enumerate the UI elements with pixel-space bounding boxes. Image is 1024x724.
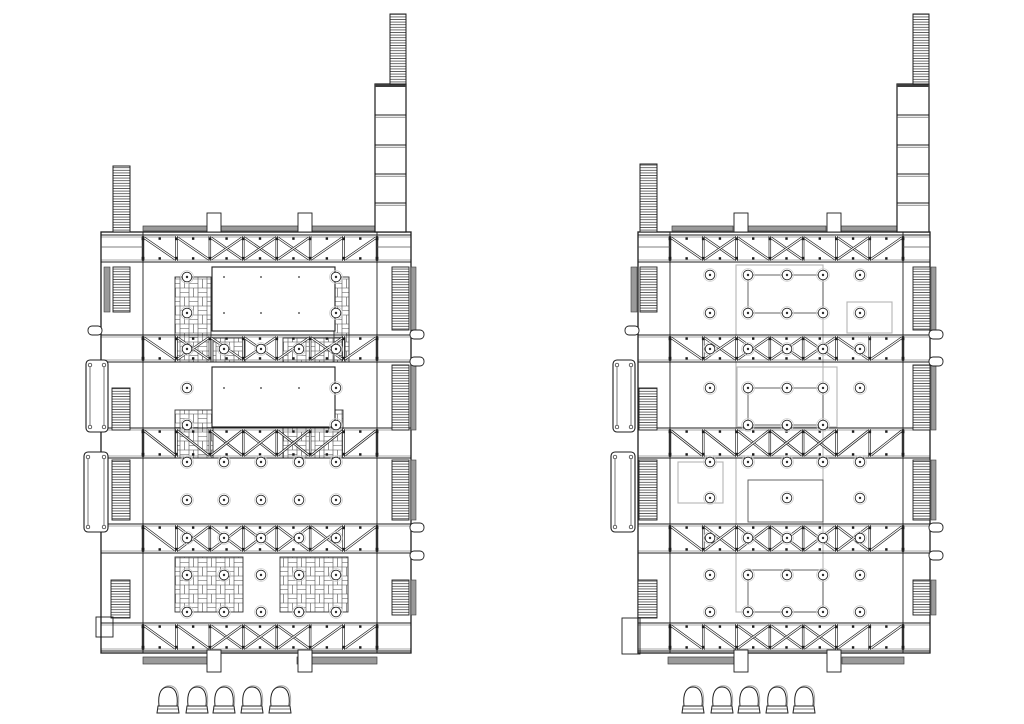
- service-towers: [113, 14, 406, 232]
- external-lifts: [611, 360, 635, 532]
- corner-annex: [622, 618, 640, 654]
- bollard-row-left: [157, 686, 291, 713]
- roof-edge-top: [672, 213, 901, 232]
- plans-root: [84, 14, 943, 713]
- drawing-canvas: [0, 0, 1024, 724]
- roof-edge-top: [143, 213, 377, 232]
- plan-left: [84, 14, 424, 672]
- floor-plan-drawing: [0, 0, 1024, 724]
- service-towers: [640, 14, 929, 232]
- bollard-row-right: [682, 686, 815, 713]
- plan-right: [611, 14, 943, 672]
